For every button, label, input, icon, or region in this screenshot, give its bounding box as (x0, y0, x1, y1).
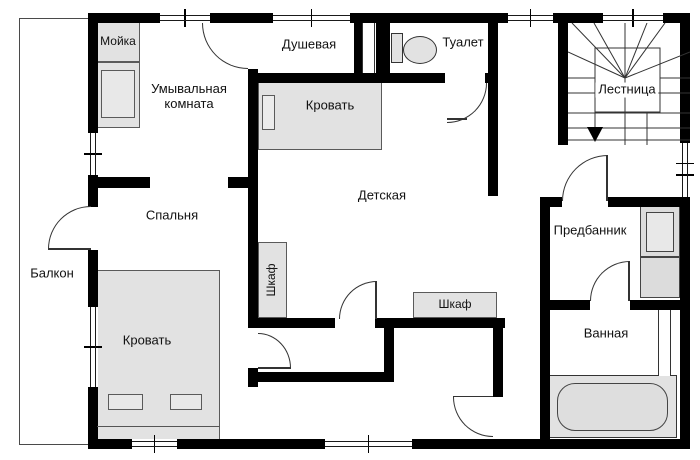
wall-segment (493, 328, 503, 397)
room-label-bathroom: Ванная (584, 327, 629, 342)
door-arc-bathroom (590, 261, 630, 301)
window-tick (530, 9, 532, 27)
window (88, 133, 98, 175)
window (273, 13, 350, 23)
wall-segment (376, 23, 390, 73)
window (603, 13, 663, 23)
window (680, 143, 690, 197)
window (508, 13, 553, 23)
furniture-label-wardrobe-side: Шкаф (265, 263, 279, 296)
window (132, 439, 177, 449)
door-opening-nursery (335, 318, 375, 328)
wall-segment (354, 23, 362, 73)
anteroom-cabinet (640, 257, 680, 298)
room-label-stairs: Лестница (595, 83, 658, 98)
window-tick (676, 174, 694, 176)
door-opening-toilet (445, 73, 485, 83)
anteroom-stove-inner (646, 212, 674, 252)
room-label-shower: Душевая (282, 38, 336, 53)
window-tick (368, 435, 370, 453)
window (325, 439, 412, 449)
wall-segment (630, 300, 690, 310)
window (88, 307, 98, 387)
window-tick (676, 163, 694, 165)
window-tick (184, 9, 186, 27)
wall-segment (384, 328, 394, 382)
wall-segment (248, 318, 335, 328)
door-leaf (628, 261, 630, 301)
wall-segment (540, 197, 550, 449)
door-arc-nursery (339, 281, 377, 319)
room-label-toilet: Туалет (442, 36, 483, 51)
bedroom-bed (97, 270, 220, 440)
door-arc-toilet (447, 83, 487, 123)
door-arc-hall (453, 397, 493, 437)
door-opening-closet (248, 333, 258, 368)
toilet-bowl-icon (403, 36, 437, 64)
window-tick (84, 346, 102, 348)
door-arc-shower (202, 23, 248, 69)
wall-segment (248, 73, 445, 83)
duct-shaft (658, 310, 671, 376)
bedroom-bed-pillow (170, 394, 202, 410)
bed-foot-line (97, 426, 220, 427)
window-tick (311, 9, 313, 27)
furniture-label-nursery-bed: Кровать (306, 99, 354, 114)
wall-segment (375, 318, 505, 328)
furniture-label-bedroom-bed: Кровать (123, 334, 171, 349)
duct-shaft (362, 23, 375, 73)
window-tick (84, 153, 102, 155)
nursery-bed (258, 82, 382, 150)
door-leaf (447, 118, 467, 120)
room-label-nursery: Детская (358, 189, 406, 204)
door-leaf (453, 396, 493, 398)
room-label-anteroom: Предбанник (554, 224, 627, 239)
toilet-tank-icon (391, 33, 403, 63)
wall-segment (248, 69, 258, 328)
door-leaf (375, 281, 377, 319)
wall-segment (540, 300, 590, 310)
room-label-sink: Мойка (100, 35, 136, 49)
door-opening-shower (248, 23, 258, 69)
sink-basin-icon (101, 70, 135, 118)
floor-plan: Мойка Умывальная комната Душевая Туалет … (0, 0, 700, 460)
door-arc-closet (258, 333, 291, 368)
furniture-label-wardrobe-bottom: Шкаф (438, 298, 471, 312)
door-leaf (606, 155, 608, 201)
room-label-bedroom: Спальня (146, 209, 198, 224)
door-opening-bathroom (590, 300, 630, 310)
window-tick (154, 435, 156, 453)
wall-segment (608, 197, 690, 207)
wall-segment (88, 177, 150, 188)
window (160, 13, 210, 23)
door-leaf (258, 367, 291, 369)
room-label-balcony: Балкон (30, 267, 74, 282)
wall-segment (248, 372, 394, 382)
bedroom-bed-pillow (108, 394, 143, 410)
room-label-washroom: Умывальная комната (139, 82, 239, 112)
wall-segment (488, 23, 498, 196)
door-leaf (48, 248, 91, 250)
nursery-bed-pillow (262, 95, 275, 130)
door-arc-anteroom (562, 155, 608, 201)
bathtub-inner (557, 383, 668, 431)
wall-stairs-left (558, 23, 568, 145)
